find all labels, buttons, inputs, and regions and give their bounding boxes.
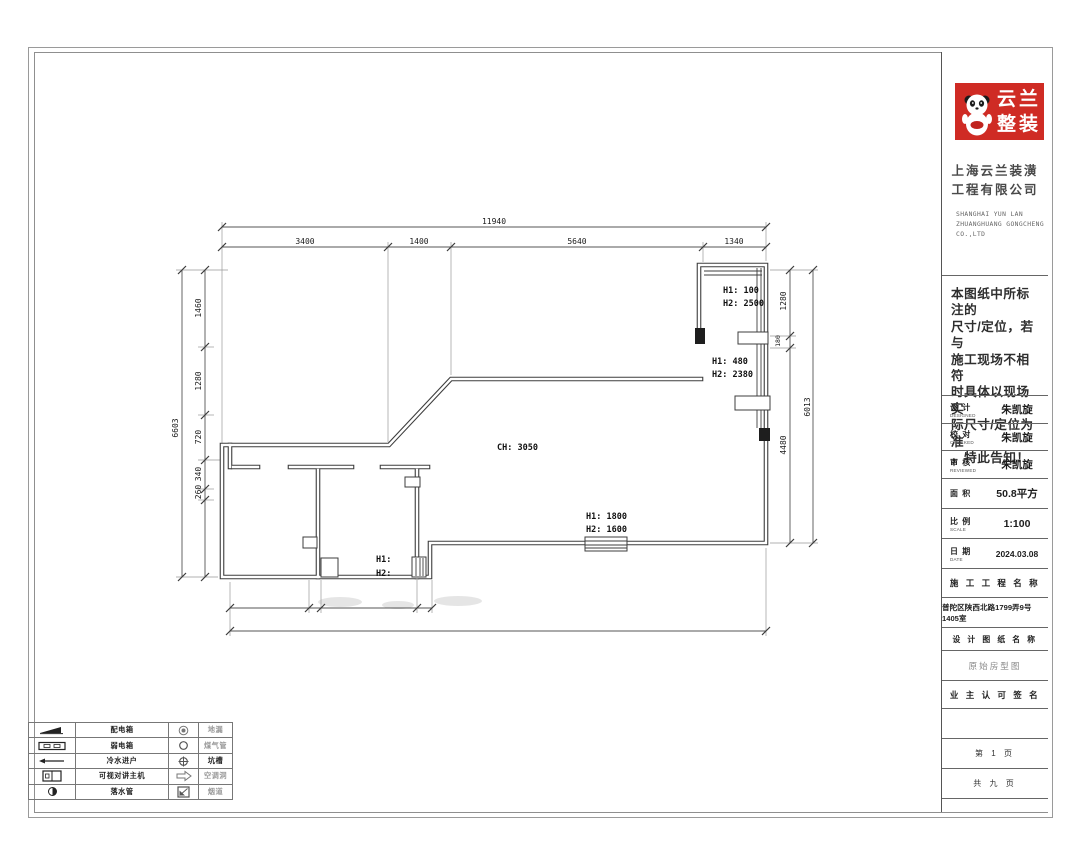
area-value: 50.8平方 <box>986 486 1048 501</box>
wall-solid-fills <box>695 328 770 441</box>
field-area: 面 积 50.8平方 <box>942 478 1048 508</box>
page-number: 第 1 页 <box>942 738 1048 768</box>
dim-top-overall: 11940 <box>482 217 506 226</box>
small-notch <box>405 477 420 487</box>
video-intercom-icon <box>42 770 62 782</box>
designer-name: 朱凯旋 <box>986 402 1048 417</box>
small-box <box>321 558 338 577</box>
bottom-window <box>585 537 627 551</box>
right-mid-window-h2: H2: 2380 <box>712 370 753 380</box>
right-mid-window-h1: H1: 480 <box>712 357 748 367</box>
panda-mascot-icon <box>958 87 994 137</box>
bottom-window-h1: H1: 1800 <box>586 512 627 522</box>
ac-hole-icon <box>176 770 192 782</box>
floor-drain-icon <box>178 725 189 736</box>
checker-name: 朱凯旋 <box>986 430 1048 445</box>
dimension-ticks <box>178 223 817 635</box>
downpipe-icon <box>47 786 58 797</box>
flue-icon <box>177 786 190 798</box>
svg-text:3400: 3400 <box>295 237 314 246</box>
walls <box>222 265 766 577</box>
svg-text:180: 180 <box>774 335 782 347</box>
company-name-cn: 上海云兰装潢 工程有限公司 <box>942 162 1048 200</box>
svg-text:1280: 1280 <box>194 371 203 390</box>
wall-stub <box>735 396 770 410</box>
project-name-header: 施 工 工 程 名 称 <box>942 568 1048 597</box>
svg-text:1460: 1460 <box>194 298 203 317</box>
drawing-name: 原始房型图 <box>942 650 1048 680</box>
extension-lines <box>176 222 818 636</box>
brand-cell: 云兰 整装 上海云兰装潢 工程有限公司 SHANGHAI YUN LAN ZHU… <box>942 52 1048 275</box>
weak-current-box-icon <box>38 741 66 751</box>
legend-row: 落水管 烟道 <box>29 784 232 799</box>
company-name-en: SHANGHAI YUN LAN ZHUANGHUANG GONGCHENG C… <box>956 210 1046 240</box>
reviewer-name: 朱凯旋 <box>986 457 1048 472</box>
svg-text:5640: 5640 <box>567 237 586 246</box>
window-sill <box>738 332 768 344</box>
field-scale: 比 例SCALE 1:100 <box>942 508 1048 538</box>
legend-row: 弱电箱 煤气管 <box>29 737 232 752</box>
svg-text:1400: 1400 <box>409 237 428 246</box>
left-opening-h1: H1: <box>376 555 391 565</box>
scale-value: 1:100 <box>986 518 1048 530</box>
legend-row: 冷水进户 坑槽 <box>29 753 232 768</box>
symbol-legend: 配电箱 地漏 弱电箱 煤气管 冷水进户 坑槽 可视对讲 <box>28 722 233 800</box>
hatch-element <box>412 557 426 577</box>
distribution-box-icon <box>39 725 65 735</box>
small-box-2 <box>303 537 317 548</box>
field-designed: 设 计DESIGNED 朱凯旋 <box>942 395 1048 423</box>
bottom-blank-cell <box>942 798 1048 812</box>
walls-cavity <box>222 265 766 577</box>
title-block: 云兰 整装 上海云兰装潢 工程有限公司 SHANGHAI YUN LAN ZHU… <box>941 52 1048 812</box>
total-pages: 共 九 页 <box>942 768 1048 798</box>
owner-signature-header: 业 主 认 可 签 名 <box>942 680 1048 708</box>
right-top-window-h1: H1: 100 <box>723 286 759 296</box>
ceiling-height-label: CH: 3050 <box>497 443 538 453</box>
owner-signature-blank <box>942 708 1048 738</box>
right-top-window-h2: H2: 2500 <box>723 299 764 309</box>
left-opening-h2: H2: <box>376 569 391 579</box>
watermark-smudge <box>318 596 482 609</box>
svg-text:720: 720 <box>194 430 203 445</box>
svg-text:4480: 4480 <box>779 435 788 454</box>
company-logo: 云兰 整装 <box>955 83 1044 140</box>
field-date: 日 期DATE 2024.03.08 <box>942 538 1048 568</box>
dimension-lines <box>182 227 813 631</box>
svg-text:6603: 6603 <box>171 418 180 437</box>
svg-text:1280: 1280 <box>779 291 788 310</box>
pit-groove-icon <box>178 756 189 767</box>
svg-text:260: 260 <box>194 485 203 500</box>
svg-text:6013: 6013 <box>803 397 812 416</box>
project-address: 普陀区陕西北路1799弄9号1405室 <box>942 597 1048 627</box>
notice-cell: 本图纸中所标注的 尺寸/定位，若与 施工现场不相符 时具体以现场实 际尺寸/定位… <box>942 275 1048 395</box>
svg-text:340: 340 <box>194 467 203 482</box>
date-value: 2024.03.08 <box>986 549 1048 559</box>
wall-features <box>303 332 770 577</box>
field-checked: 校 对CHECKED 朱凯旋 <box>942 423 1048 450</box>
legend-row: 可视对讲主机 空调洞 <box>29 768 232 783</box>
drawing-name-header: 设 计 图 纸 名 称 <box>942 627 1048 650</box>
scanned-drawing-sheet: { "title_block": { "logo": { "brand_line… <box>0 0 1080 864</box>
cold-water-inlet-icon <box>38 756 66 766</box>
legend-row: 配电箱 地漏 <box>29 723 232 737</box>
field-reviewed: 审 核REVIEWED 朱凯旋 <box>942 450 1048 478</box>
brand-wordmark: 云兰 整装 <box>994 87 1044 137</box>
svg-text:1340: 1340 <box>724 237 743 246</box>
gas-pipe-icon <box>178 740 189 751</box>
plan-annotations: CH: 3050 H1: 1800 H2: 1600 H1: 100 H2: 2… <box>376 286 764 579</box>
bottom-window-h2: H2: 1600 <box>586 525 627 535</box>
